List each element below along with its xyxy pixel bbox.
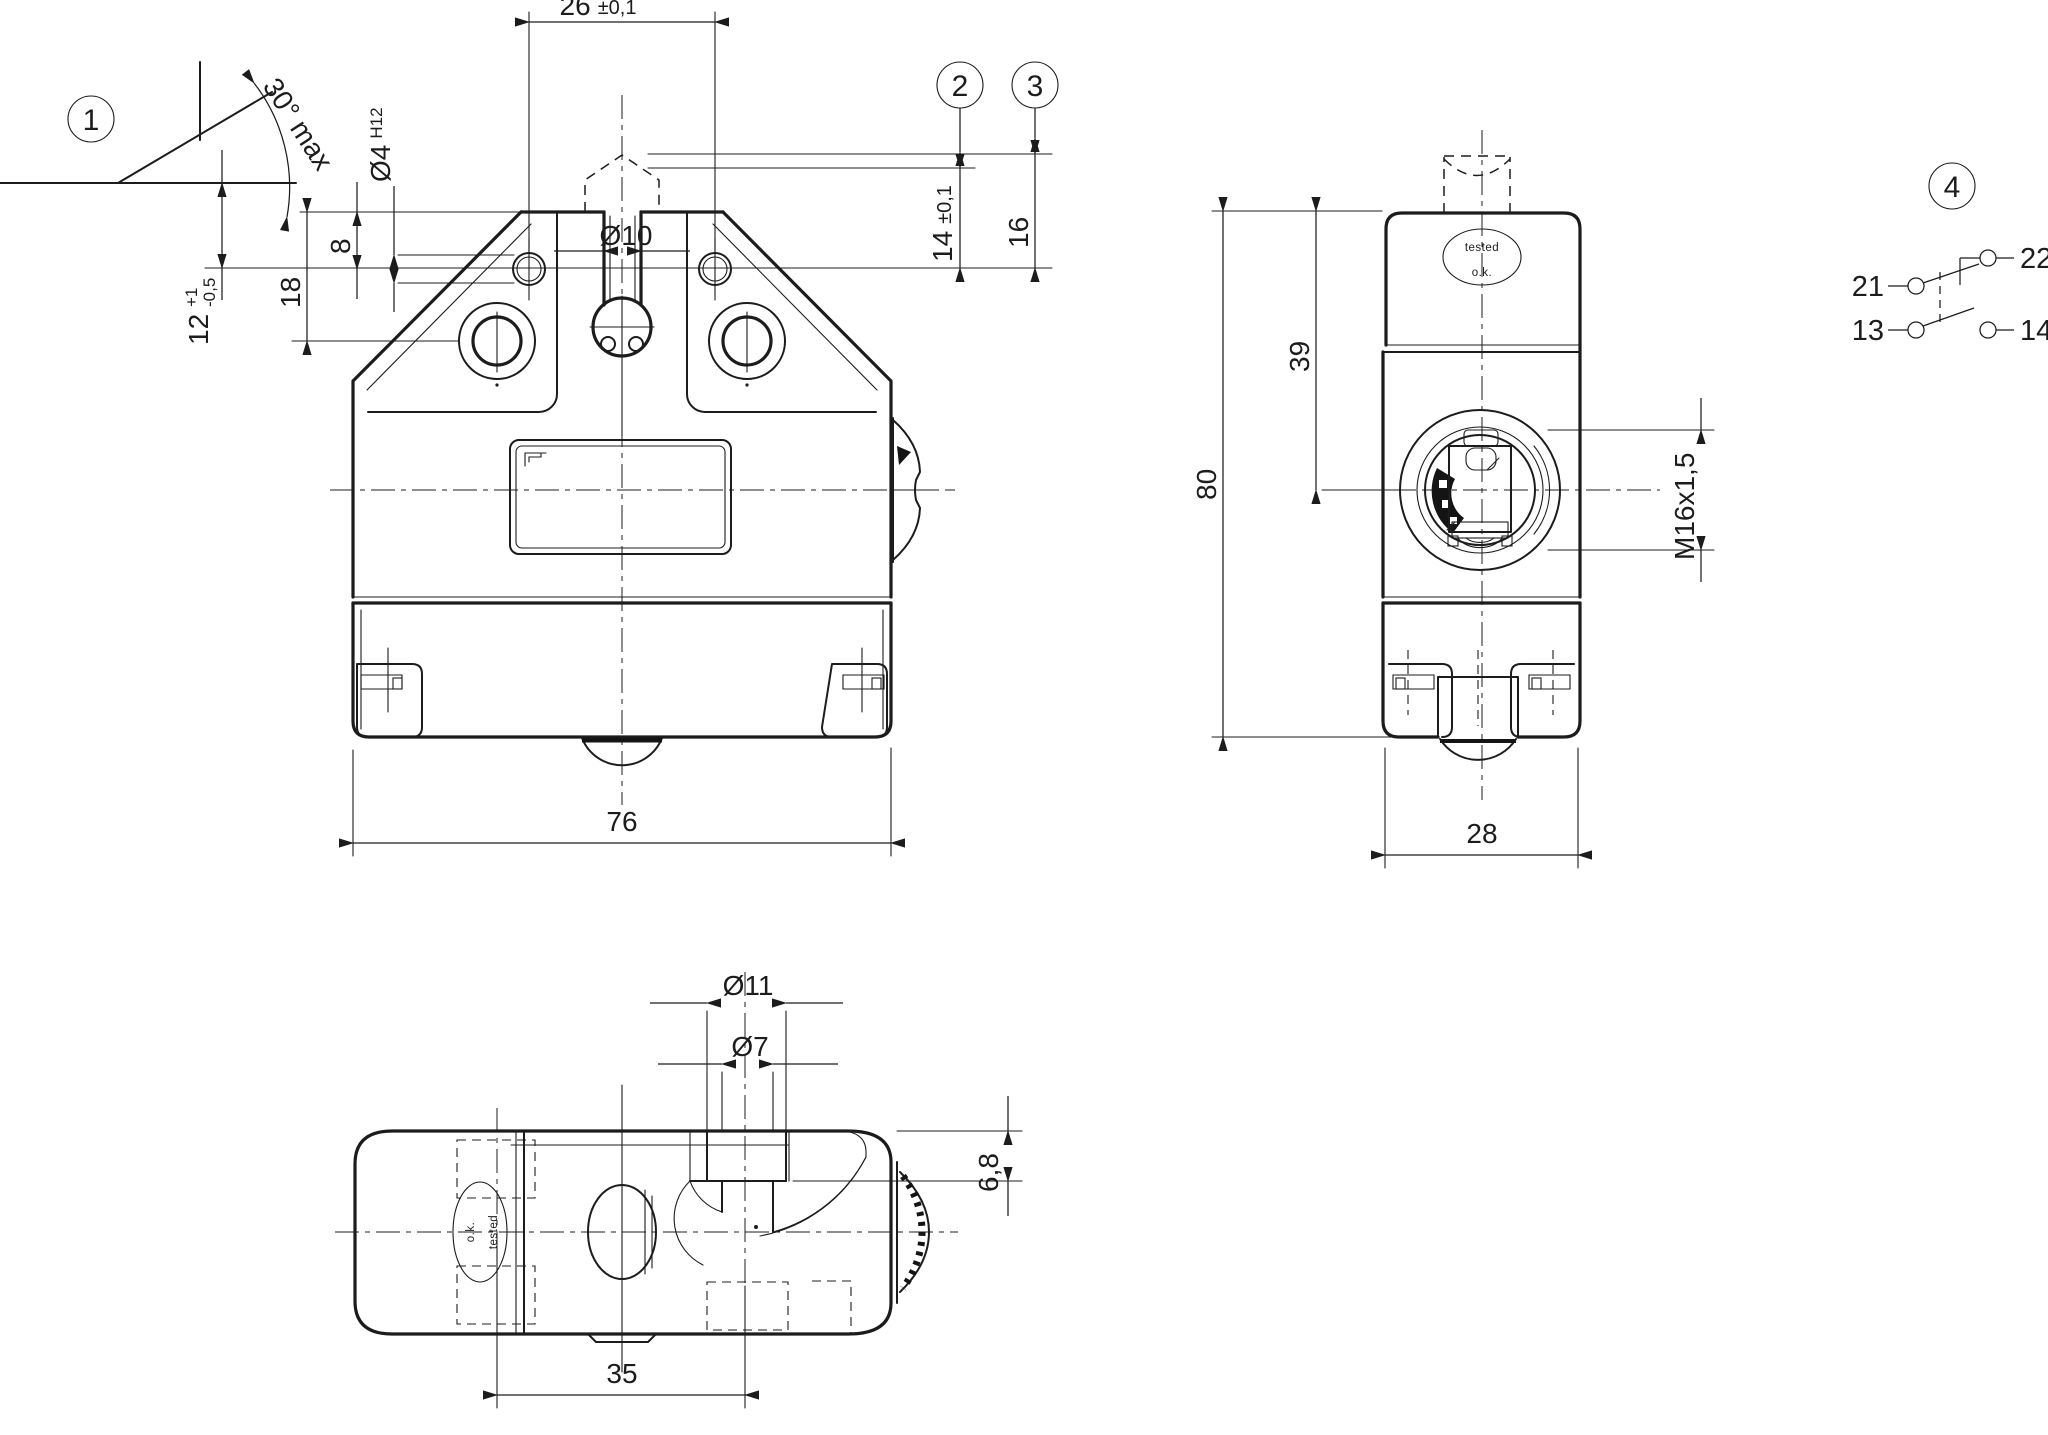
dim-80: 80 xyxy=(1191,469,1222,500)
terminal-21: 21 xyxy=(1852,271,1884,303)
dim-10: Ø10 xyxy=(600,220,653,251)
dim-14: 14±0,1 xyxy=(927,185,958,262)
circuit-wiring xyxy=(1888,250,2014,338)
side-centerlines xyxy=(1340,130,1660,800)
bottom-dimensions: Ø11 Ø7 6,8 35 xyxy=(497,970,1022,1408)
bottom-outline xyxy=(355,1131,929,1342)
bottom-stamp-ok: o.k. xyxy=(465,1222,477,1243)
side-dimensions: 80 39 M16x1,5 28 xyxy=(1191,211,1714,868)
svg-text:+1: +1 xyxy=(182,288,201,307)
dim-68: 6,8 xyxy=(973,1153,1004,1192)
stamp-ok: o.k. xyxy=(1472,267,1493,279)
svg-text:12: 12 xyxy=(183,314,214,345)
dim-m16: M16x1,5 xyxy=(1669,453,1700,560)
side-view: tested o.k. xyxy=(1191,130,1714,868)
dim-8: 8 xyxy=(325,238,356,254)
front-view xyxy=(330,95,955,805)
callout-1-label: 1 xyxy=(83,104,100,137)
detail-1-actuation-angle: 1 30° max xyxy=(0,62,339,217)
bottom-centerlines xyxy=(335,972,958,1372)
dim-18: 18 xyxy=(275,277,306,308)
bottom-stamp-tested: tested xyxy=(488,1215,500,1249)
terminal-14: 14 xyxy=(2020,315,2048,347)
angle-value: 30° max xyxy=(257,72,339,175)
terminal-13: 13 xyxy=(1852,315,1884,347)
side-plunger-hidden xyxy=(1444,156,1510,213)
terminal-22: 22 xyxy=(2020,243,2048,275)
dim-11: Ø11 xyxy=(723,970,774,1001)
callout-4-label: 4 xyxy=(1944,171,1961,204)
dim-12: 12 +1 -0,5 xyxy=(182,278,219,345)
front-centerlines xyxy=(330,95,955,805)
bottom-view: tested o.k. xyxy=(335,970,1022,1408)
callout-2-label: 2 xyxy=(952,70,969,103)
dim-7: Ø7 xyxy=(731,1031,768,1062)
svg-text:-0,5: -0,5 xyxy=(200,278,219,307)
stamp-tested: tested xyxy=(1465,242,1499,254)
dim-39: 39 xyxy=(1284,341,1315,372)
callout-3-label: 3 xyxy=(1027,70,1044,103)
dim-35: 35 xyxy=(606,1358,637,1389)
rating-plate xyxy=(510,440,731,554)
dim-28: 28 xyxy=(1466,818,1497,849)
contact-circuit-diagram: 4 21 22 13 14 xyxy=(1852,163,2048,347)
front-gland-bulge xyxy=(893,418,935,562)
plate-corner-mark xyxy=(525,453,546,466)
bottom-section-hatch xyxy=(674,1131,866,1265)
dim-26: 26±0,1 xyxy=(560,0,637,21)
dim-16: 16 xyxy=(1003,217,1034,248)
limit-switch-dimension-drawing: 1 30° max xyxy=(0,0,2048,1435)
dimension-drawing-page: 1 30° max xyxy=(0,0,2048,1435)
dim-76: 76 xyxy=(606,806,637,837)
dim-4-h12: Ø4H12 xyxy=(365,107,396,182)
angled-surface-line xyxy=(118,92,272,183)
